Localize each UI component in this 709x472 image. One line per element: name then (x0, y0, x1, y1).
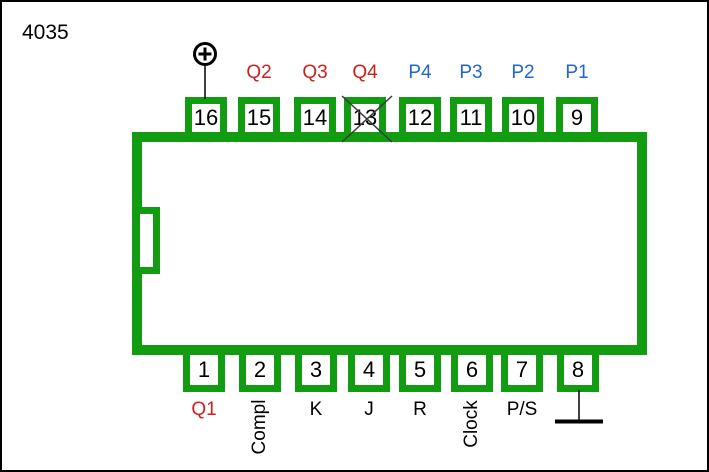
pin-12: 12 (399, 97, 441, 142)
pin-number: 5 (406, 355, 434, 385)
pin-13-crossed-out-icon (341, 95, 393, 143)
pin-15-label: Q2 (229, 62, 289, 84)
pin-9: 9 (556, 97, 598, 142)
pin-3: 3 (295, 347, 337, 392)
pin-5: 5 (399, 347, 441, 392)
pin-number: 8 (564, 355, 592, 385)
pin-11-label: P3 (441, 62, 501, 84)
pin-15: 15 (238, 97, 280, 142)
pin-10: 10 (502, 97, 544, 142)
pin-7-label: P/S (492, 399, 552, 421)
pin-14: 14 (294, 97, 336, 142)
pin-8: 8 (557, 347, 599, 392)
pin-13-label: Q4 (335, 62, 395, 84)
pin-number: 7 (508, 355, 536, 385)
pin-1: 1 (183, 347, 225, 392)
pin-7: 7 (501, 347, 543, 392)
pin-9-label: P1 (547, 62, 607, 84)
pin-number: 11 (457, 104, 485, 132)
pin-number: 3 (302, 355, 330, 385)
pin-number: 9 (563, 104, 591, 132)
pin-11: 11 (450, 97, 492, 142)
chip-title: 4035 (22, 21, 69, 45)
ic-body (132, 132, 647, 355)
pin-number: 16 (192, 104, 220, 132)
power-plus-icon (188, 37, 224, 102)
pinout-diagram: 4035 16 15 14 13 12 11 10 9 Q2 Q3 Q4 P4 … (0, 0, 709, 472)
pin-number: 4 (355, 355, 383, 385)
ic-notch (133, 207, 160, 274)
pin-number: 14 (301, 104, 329, 132)
pin-10-label: P2 (493, 62, 553, 84)
pin-number: 10 (509, 104, 537, 132)
pin-number: 12 (406, 104, 434, 132)
pin-4: 4 (348, 347, 390, 392)
pin-16: 16 (185, 97, 227, 142)
pin-2-label: Compl (250, 382, 270, 472)
pin-number: 1 (190, 355, 218, 385)
ground-icon (553, 390, 605, 428)
pin-number: 2 (246, 355, 274, 385)
pin-number: 15 (245, 104, 273, 132)
pin-1-label: Q1 (174, 399, 234, 421)
pin-5-label: R (390, 399, 450, 421)
pin-6-label: Clock (462, 379, 482, 469)
pin-3-label: K (286, 399, 346, 421)
